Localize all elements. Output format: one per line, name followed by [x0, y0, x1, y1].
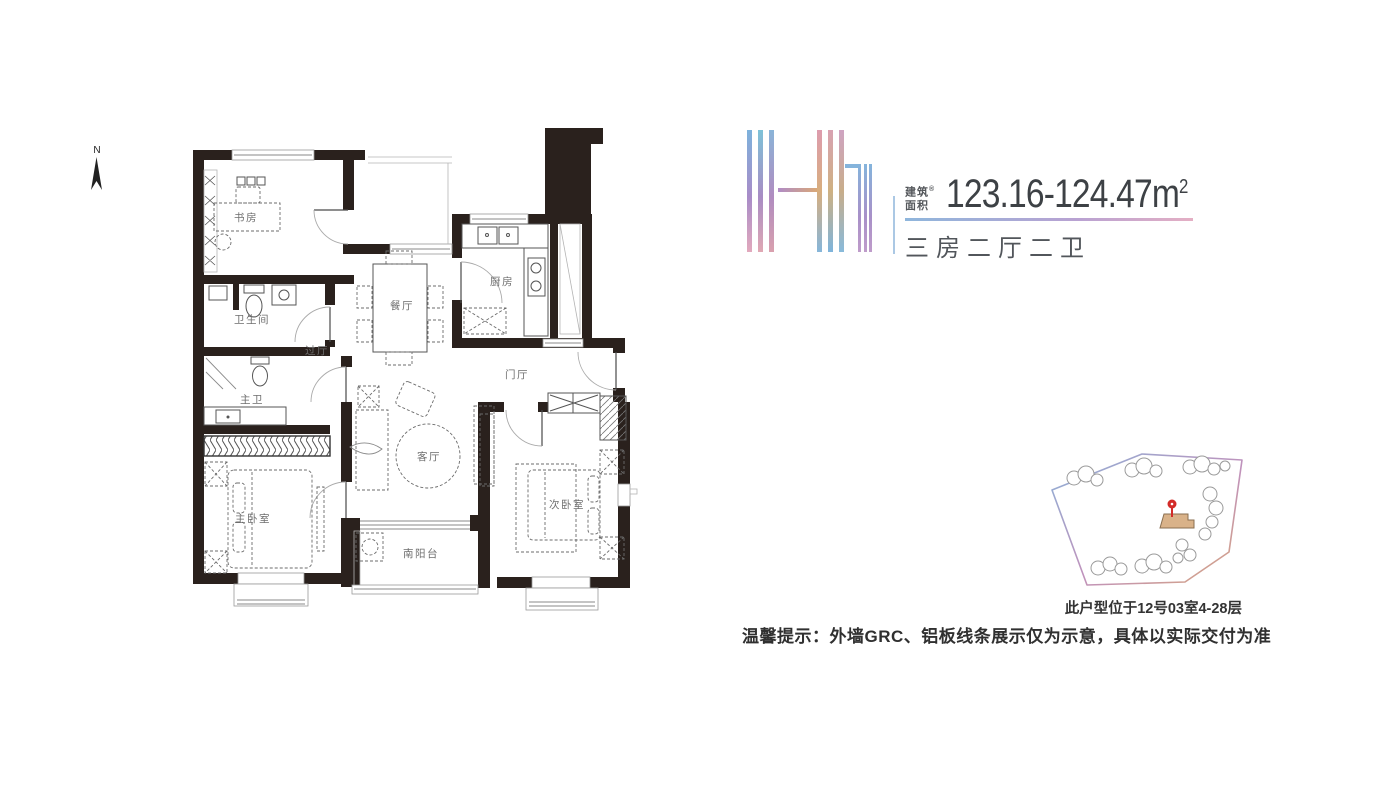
layout-summary: 三房二厅二卫: [905, 228, 1091, 263]
unit-logo: H1: [742, 128, 882, 254]
room-label-hallway: 过厅: [305, 344, 329, 357]
compass-label: N: [93, 145, 100, 156]
room-label-master-bedroom: 主卧室: [235, 512, 271, 525]
logo-stripe: [864, 164, 867, 252]
area-prefix-line1: 建筑: [905, 187, 929, 199]
room-label-study: 书房: [234, 211, 258, 224]
shoe-cabinet: [548, 393, 600, 413]
logo-stripe: [758, 130, 763, 252]
bay-hatch: [205, 176, 215, 265]
logo-crossbar: [778, 188, 817, 192]
area-number: 123.16-124.47: [946, 172, 1152, 216]
area-prefix: 建筑® 面积: [905, 183, 935, 213]
room-labels: 书房 卫生间 过厅 餐厅 厨房 门厅 主卫 主卧室 客厅 次卧室 南阳台: [234, 211, 585, 560]
logo-stripe: [817, 130, 822, 252]
registered-mark: ®: [929, 186, 935, 193]
area-value: 123.16-124.47m2: [946, 172, 1187, 217]
location-note: 此户型位于12号03室4-28层: [842, 597, 1242, 618]
room-label-bath: 卫生间: [234, 313, 270, 326]
headline-underline: [905, 218, 1193, 221]
logo-one-hook: [845, 164, 859, 168]
site-plan: [1042, 442, 1254, 594]
room-label-dining: 餐厅: [390, 299, 414, 312]
logo-stripe: [858, 164, 861, 252]
room-label-living: 客厅: [417, 450, 441, 463]
room-label-foyer: 门厅: [505, 368, 529, 381]
room-label-second-bedroom: 次卧室: [549, 498, 585, 511]
floorplan-poster: N: [0, 0, 1400, 788]
logo-stripe: [869, 164, 872, 252]
area-prefix-line2: 面积: [905, 200, 935, 213]
disclaimer-text: 温馨提示：外墙GRC、铝板线条展示仅为示意，具体以实际交付为准: [742, 622, 1242, 647]
logo-stripe: [769, 130, 774, 252]
floorplan-drawing: N: [80, 120, 660, 630]
area-unit: m: [1152, 172, 1179, 216]
logo-stripe: [839, 130, 844, 252]
area-unit-sup: 2: [1179, 176, 1188, 198]
logo-stripe: [828, 130, 833, 252]
room-label-master-bath: 主卫: [240, 394, 264, 406]
room-label-south-balcony: 南阳台: [403, 547, 439, 560]
room-label-kitchen: 厨房: [490, 275, 514, 288]
closet: [600, 396, 626, 440]
wardrobe: [204, 436, 330, 456]
north-arrow-icon: N: [91, 145, 102, 190]
vertical-divider: [893, 196, 895, 254]
logo-stripe: [747, 130, 752, 252]
